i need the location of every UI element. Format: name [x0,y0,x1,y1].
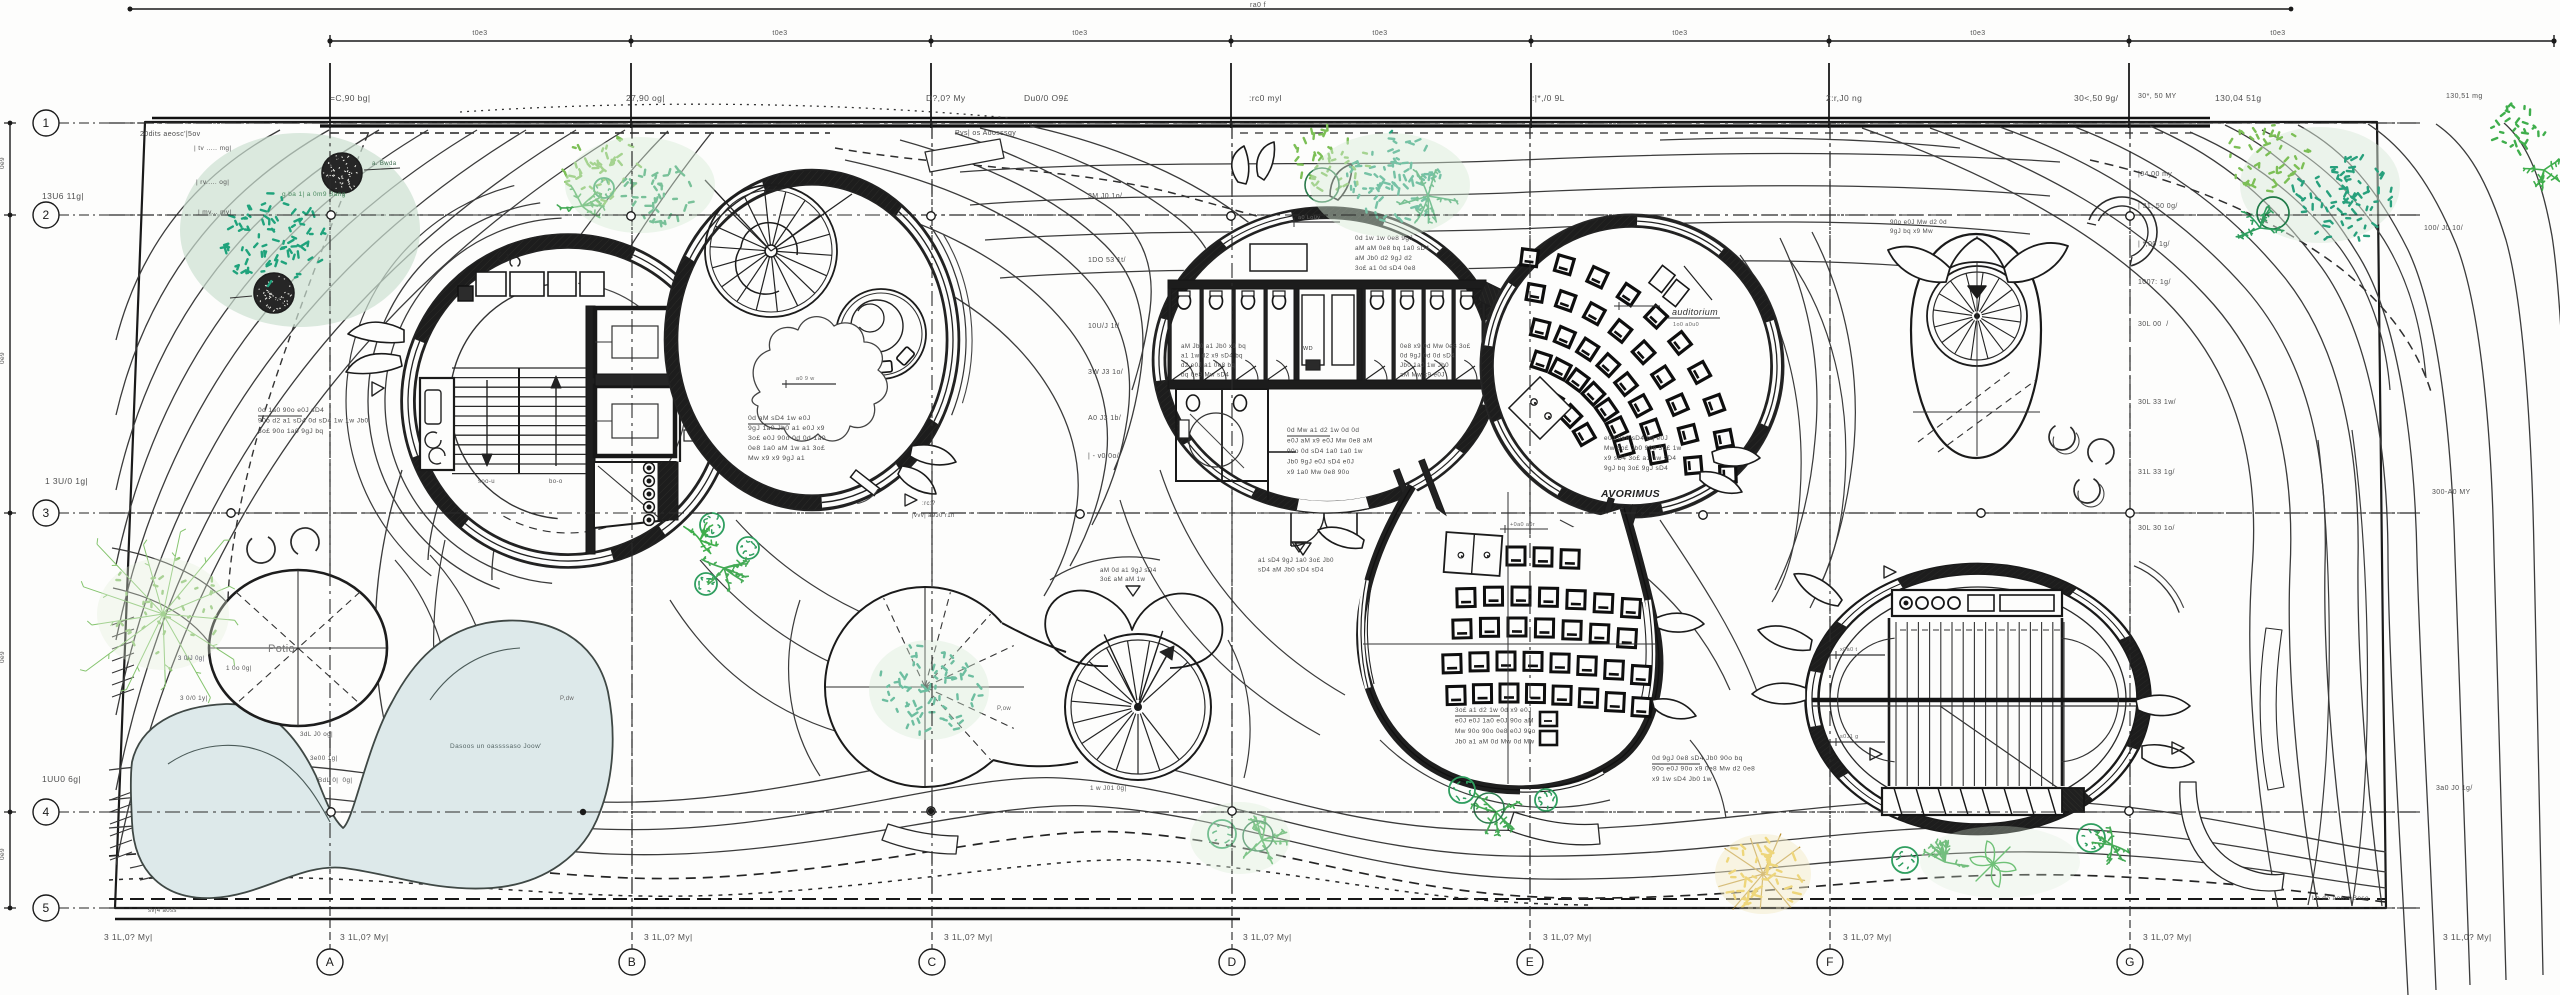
svg-text:Potio: Potio [268,643,295,655]
svg-text:e0J aM x9 e0J Mw 0e8 aM: e0J aM x9 e0J Mw 0e8 aM [1287,438,1373,445]
svg-text:| - v0 0o/: | - v0 0o/ [1088,453,1119,460]
svg-text:3o£ e0J 90o 0d 0d 1a0: 3o£ e0J 90o 0d 0d 1a0 [748,435,826,442]
svg-text:0e9: 0e9 [0,352,6,364]
svg-text:bo-o: bo-o [549,479,563,485]
svg-text:0d 9gJ 0d 0d sD4: 0d 9gJ 0d 0d sD4 [1400,353,1455,360]
svg-text:Du0/0 O9£: Du0/0 O9£ [1024,93,1069,103]
svg-text:t0e3: t0e3 [1970,30,1985,37]
svg-text:|vvv| a9J0 r1n: |vvv| a9J0 r1n [912,513,955,519]
svg-text:F: F [1826,955,1834,969]
svg-text:0e9: 0e9 [0,651,6,663]
svg-text:Lo do aoost Bose: Lo do aoost Bose [2312,895,2369,902]
svg-text:3 1L,0? My|: 3 1L,0? My| [2443,932,2492,942]
svg-text:10U/J 1t/: 10U/J 1t/ [1088,323,1120,330]
svg-text:x0a0 t: x0a0 t [1840,647,1857,653]
svg-text:90o e0J 90o x9 0e8 Mw d2 0e8: 90o e0J 90o x9 0e8 Mw d2 0e8 [1652,766,1755,773]
svg-text:27,90 og|: 27,90 og| [626,93,665,103]
svg-text:0e8 1a0 aM 1w a1 3o£: 0e8 1a0 aM 1w a1 3o£ [748,445,825,452]
svg-text:t0e3: t0e3 [1372,30,1387,37]
svg-text:Jb0 a1 aM 0d Mw 0d Mw: Jb0 a1 aM 0d Mw 0d Mw [1455,739,1534,746]
svg-text:0e9: 0e9 [0,848,6,860]
svg-text:3o£ a1 d2 1w 0d x9 e0J: 3o£ a1 d2 1w 0d x9 e0J [1455,707,1532,714]
svg-text:+0a0 a0r: +0a0 a0r [1510,522,1535,528]
svg-text:D: D [1227,955,1236,969]
svg-text:20dits aeosc'|5ov: 20dits aeosc'|5ov [140,131,201,138]
svg-text:3: 3 [42,506,49,520]
svg-text:E: E [1526,955,1534,969]
svg-text:| tv ..... mg|: | tv ..... mg| [194,145,232,152]
svg-text:| 31, 50 0g/: | 31, 50 0g/ [2138,203,2178,210]
svg-text:9gJ bq x9 Mw: 9gJ bq x9 Mw [1890,228,1933,235]
svg-text:3W J3 1o/: 3W J3 1o/ [1088,369,1123,376]
svg-text:3a0 J0 1g/: 3a0 J0 1g/ [2436,785,2473,792]
svg-text:90o e0J Mw d2 0d: 90o e0J Mw d2 0d [1890,219,1947,226]
svg-text:A0 J3 1b/: A0 J3 1b/ [1088,415,1121,422]
svg-text:90o d2 a1 sD4 0d sD4 1w 1w Jb0: 90o d2 a1 sD4 0d sD4 1w 1w Jb0 [258,418,369,425]
svg-text:auditorium: auditorium [1672,307,1718,317]
svg-text:sD4 aM Jb0 sD4 sD4: sD4 aM Jb0 sD4 sD4 [1258,567,1324,574]
svg-text:| *,00 1g/: | *,00 1g/ [2138,241,2170,248]
svg-text:31L 33 1g/: 31L 33 1g/ [2138,469,2175,476]
svg-text:130,51 mg: 130,51 mg [2446,93,2483,100]
svg-text:t0e3: t0e3 [2270,30,2285,37]
svg-text:a0 Lo0v: a0 Lo0v [1298,215,1320,221]
svg-text:3 0/0 1y|: 3 0/0 1y| [180,695,208,702]
svg-text:x9 1w sD4 Jb0 1w: x9 1w sD4 Jb0 1w [1652,776,1712,783]
svg-text:B: B [628,955,636,969]
svg-text:a1 sD4 9gJ 1a0 3o£ Jb0: a1 sD4 9gJ 1a0 3o£ Jb0 [1258,557,1334,564]
svg-text:x9 sD4 3o£ a1 1w sD4: x9 sD4 3o£ a1 1w sD4 [1604,455,1676,462]
svg-text:a0 9 w: a0 9 w [796,376,815,382]
svg-text:30*, 50 MY: 30*, 50 MY [2138,93,2177,100]
svg-text:ra0 f: ra0 f [1250,2,1266,9]
svg-text:aM Jb0 d2 9gJ d2: aM Jb0 d2 9gJ d2 [1355,255,1412,262]
svg-text:30L 33 1w/: 30L 33 1w/ [2138,399,2176,406]
svg-text:3 1L,0? My|: 3 1L,0? My| [1543,932,1592,942]
svg-text:|04,00 my: |04,00 my [2138,171,2172,178]
svg-text:soo-u: soo-u [478,479,495,485]
svg-text:3o£ a1 0d sD4 0e8: 3o£ a1 0d sD4 0e8 [1355,265,1416,272]
svg-text:0e9: 0e9 [0,157,6,169]
svg-text:bq 0e8 Mw sD4: bq 0e8 Mw sD4 [1181,372,1229,379]
svg-text:0d 9gJ 0e8 sD4 Jb0 90o bq: 0d 9gJ 0e8 sD4 Jb0 90o bq [1652,755,1743,762]
svg-text:t0e3: t0e3 [1072,30,1087,37]
svg-text:a1 1w d2 x9 sD4 bq: a1 1w d2 x9 sD4 bq [1181,353,1243,360]
svg-text:Pvs| os Aoosssgy: Pvs| os Aoosssgy [955,130,1016,137]
svg-text:BdL 0| 0g|: BdL 0| 0g| [318,777,352,784]
svg-text:100/ J0 10/: 100/ J0 10/ [2424,225,2463,232]
svg-text:3 1L,0? My|: 3 1L,0? My| [644,932,693,942]
svg-text:1007: 1g/: 1007: 1g/ [2138,279,2171,286]
svg-text:3 0/J 0g|: 3 0/J 0g| [178,656,205,662]
svg-text:0e8 x9 0d Mw 0e8 3o£: 0e8 x9 0d Mw 0e8 3o£ [1400,343,1471,350]
svg-text:13U6 11g|: 13U6 11g| [42,191,84,201]
svg-text:0d aM sD4 1w e0J: 0d aM sD4 1w e0J [748,415,811,422]
svg-text:t0e3: t0e3 [1672,30,1687,37]
svg-text:C: C [927,955,936,969]
svg-text:1 3U/0 1g|: 1 3U/0 1g| [45,476,88,486]
svg-text::|*,/0 9L: :|*,/0 9L [1532,93,1565,103]
svg-text:A: A [326,955,334,969]
svg-text:1DO 53 1t/: 1DO 53 1t/ [1088,257,1126,264]
svg-text:1o0 a0u0: 1o0 a0u0 [1673,322,1699,328]
svg-text:130,04 51g: 130,04 51g [2215,93,2262,103]
svg-text:aM Mw x9 e0J: aM Mw x9 e0J [1400,372,1445,379]
svg-text:x9 1a0 Mw 0e8 90o: x9 1a0 Mw 0e8 90o [1287,469,1350,476]
svg-text:Mw 3o£ Jb0 90o 3o£ 1w: Mw 3o£ Jb0 90o 3o£ 1w [1604,445,1682,452]
svg-text:sv|4 a0ss: sv|4 a0ss [148,908,177,914]
svg-text:P,dw: P,dw [560,696,574,702]
svg-text:9gJ bq 3o£ 9gJ sD4: 9gJ bq 3o£ 9gJ sD4 [1604,465,1668,472]
svg-text:3 1L,0? My|: 3 1L,0? My| [104,932,153,942]
svg-text:=C,90 bg|: =C,90 bg| [330,93,371,103]
svg-text:4: 4 [42,805,49,819]
svg-text:30L 00 /: 30L 00 / [2138,321,2169,328]
svg-text:aM Jb0 a1 Jb0 x9 bq: aM Jb0 a1 Jb0 x9 bq [1181,343,1246,350]
svg-text:3M J0 1o/: 3M J0 1o/ [1088,193,1122,200]
svg-text:3o£ aM aM 1w: 3o£ aM aM 1w [1100,576,1146,583]
svg-text:3o£ 90o 1a0 9gJ bq: 3o£ 90o 1a0 9gJ bq [258,428,324,435]
svg-text:t0e3: t0e3 [472,30,487,37]
svg-text:0d 1a0 90o e0J sD4: 0d 1a0 90o e0J sD4 [258,407,324,414]
svg-text:3 1L,0? My|: 3 1L,0? My| [1843,932,1892,942]
svg-text:2: 2 [42,208,49,222]
svg-text:3dL J0 og|: 3dL J0 og| [300,731,333,738]
svg-text:Dasoos un oassssaso Joow': Dasoos un oassssaso Joow' [450,743,542,750]
svg-text:Mw 90o 90o 0e8 e0J 90o: Mw 90o 90o 0e8 e0J 90o [1455,728,1536,735]
svg-text:D?,0? My: D?,0? My [926,93,966,103]
svg-text:0d Mw a1 d2 1w 0d 0d: 0d Mw a1 d2 1w 0d 0d [1287,427,1359,434]
svg-text:90o 0d sD4 1a0 1a0 1w: 90o 0d sD4 1a0 1a0 1w [1287,448,1363,455]
svg-text:30L 30 1o/: 30L 30 1o/ [2138,525,2175,532]
svg-text:a. Bwda: a. Bwda [372,161,397,167]
svg-text:d2 e0J a1 0e8 bq: d2 e0J a1 0e8 bq [1181,362,1235,369]
svg-text:| rv..... og|: | rv..... og| [196,179,229,186]
svg-text:WD: WD [1303,346,1313,352]
svg-text:3 1L,0? My|: 3 1L,0? My| [340,932,389,942]
svg-text:aM aM 0e8 bq 1a0 sD4: aM aM 0e8 bq 1a0 sD4 [1355,245,1429,252]
svg-text::rc:?: :rc:? [922,501,936,507]
svg-text:5: 5 [42,901,49,915]
svg-text:t0e3: t0e3 [772,30,787,37]
svg-text:3e00 1g|: 3e00 1g| [310,755,338,762]
svg-text:e0J 0e8 sD4 bq e0J: e0J 0e8 sD4 bq e0J [1604,435,1668,442]
svg-text:P,ow: P,ow [997,706,1011,712]
svg-text:3 1L,0? My|: 3 1L,0? My| [944,932,993,942]
svg-text:3 1L,0? My|: 3 1L,0? My| [1243,932,1292,942]
svg-text:1: 1 [42,116,49,130]
svg-text:1 0o 0g|: 1 0o 0g| [226,665,252,672]
svg-text:2:r,J0 ng: 2:r,J0 ng [1826,93,1862,103]
svg-text:9gJ 1a0 Jb0 a1 e0J x9: 9gJ 1a0 Jb0 a1 e0J x9 [748,425,825,432]
svg-text:aM 0d a1 9gJ sD4: aM 0d a1 9gJ sD4 [1100,567,1157,574]
svg-text:g ba 1| a 0m9 Bang: g ba 1| a 0m9 Bang [282,191,346,198]
svg-text:Mw x9 x9 9gJ a1: Mw x9 x9 9gJ a1 [748,455,805,462]
svg-text:Jb0 9gJ e0J sD4 e0J: Jb0 9gJ e0J sD4 e0J [1287,459,1354,466]
svg-text:30<,50 9g/: 30<,50 9g/ [2074,93,2119,103]
svg-text::rc0 myl: :rc0 myl [1249,93,1282,103]
svg-text:3 1L,0? My|: 3 1L,0? My| [2143,932,2192,942]
svg-text:Jb0 1a0 1w Jb0: Jb0 1a0 1w Jb0 [1400,362,1449,369]
svg-text:300-A0 MY: 300-A0 MY [2432,489,2471,496]
svg-text:e0J e0J 1a0 e0J 90o aM: e0J e0J 1a0 e0J 90o aM [1455,718,1534,725]
svg-text:1 w J01 0g|: 1 w J01 0g| [1090,785,1127,792]
svg-text:G: G [2125,955,2135,969]
svg-text:1UU0 6g|: 1UU0 6g| [42,774,81,784]
